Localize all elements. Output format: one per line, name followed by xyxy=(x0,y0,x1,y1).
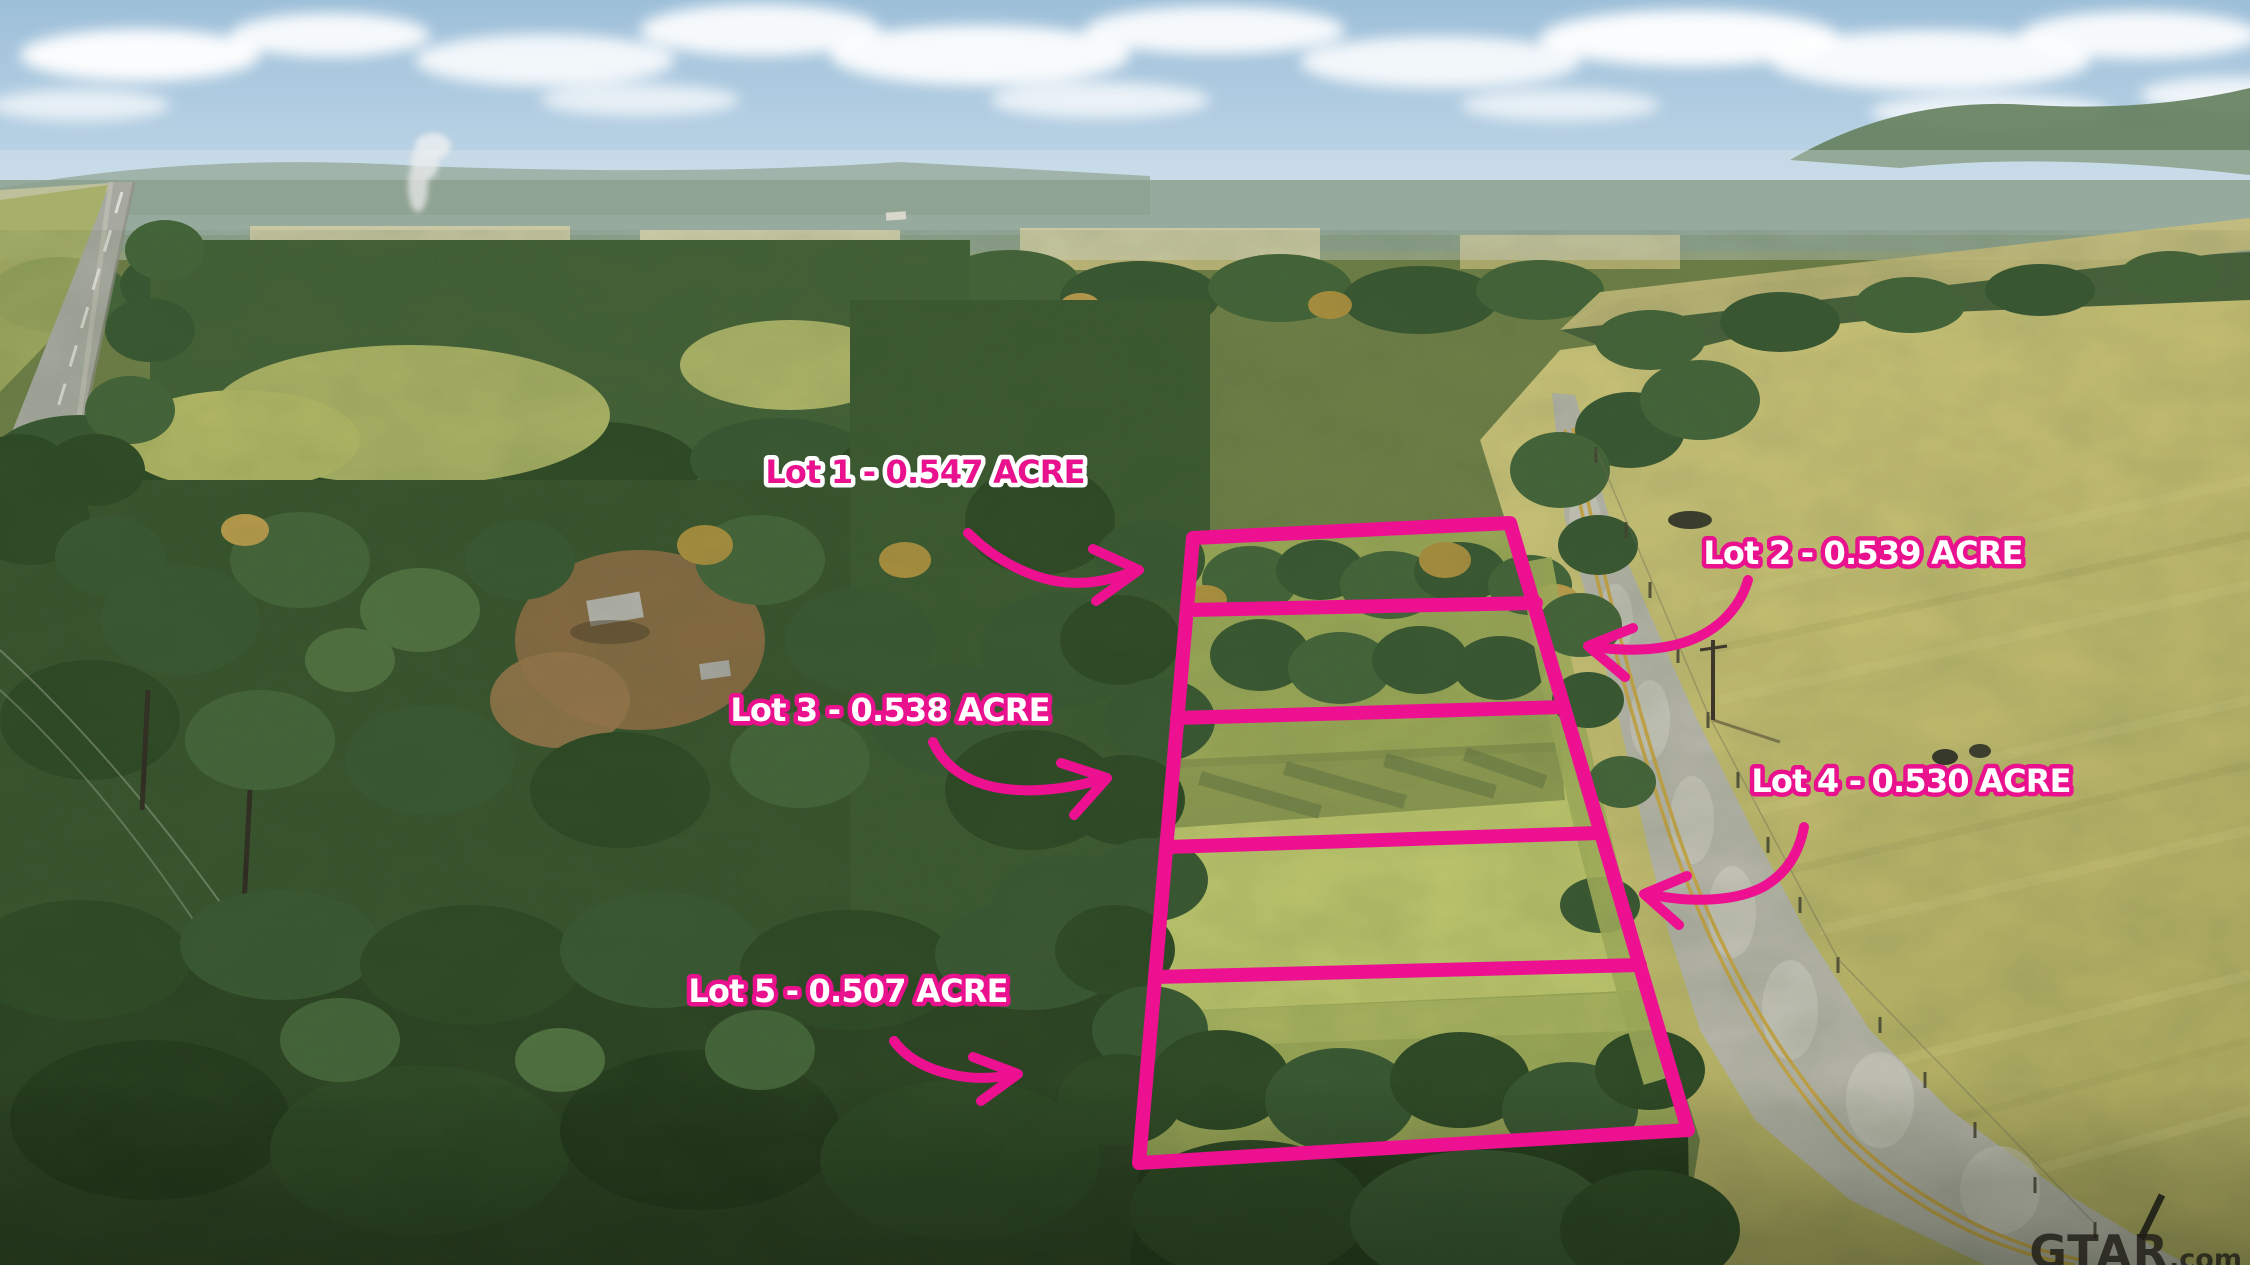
gtar-watermark-suffix: .com xyxy=(2169,1244,2242,1265)
bottom-shade xyxy=(0,1080,2250,1265)
landscape-photo xyxy=(0,0,2250,1265)
gtar-watermark: GTAR.com xyxy=(2029,1225,2242,1265)
gtar-watermark-brand: GTAR xyxy=(2029,1225,2169,1265)
annotated-aerial-photo: Lot 1 - 0.547 ACRE Lot 2 - 0.539 ACRE Lo… xyxy=(0,0,2250,1265)
